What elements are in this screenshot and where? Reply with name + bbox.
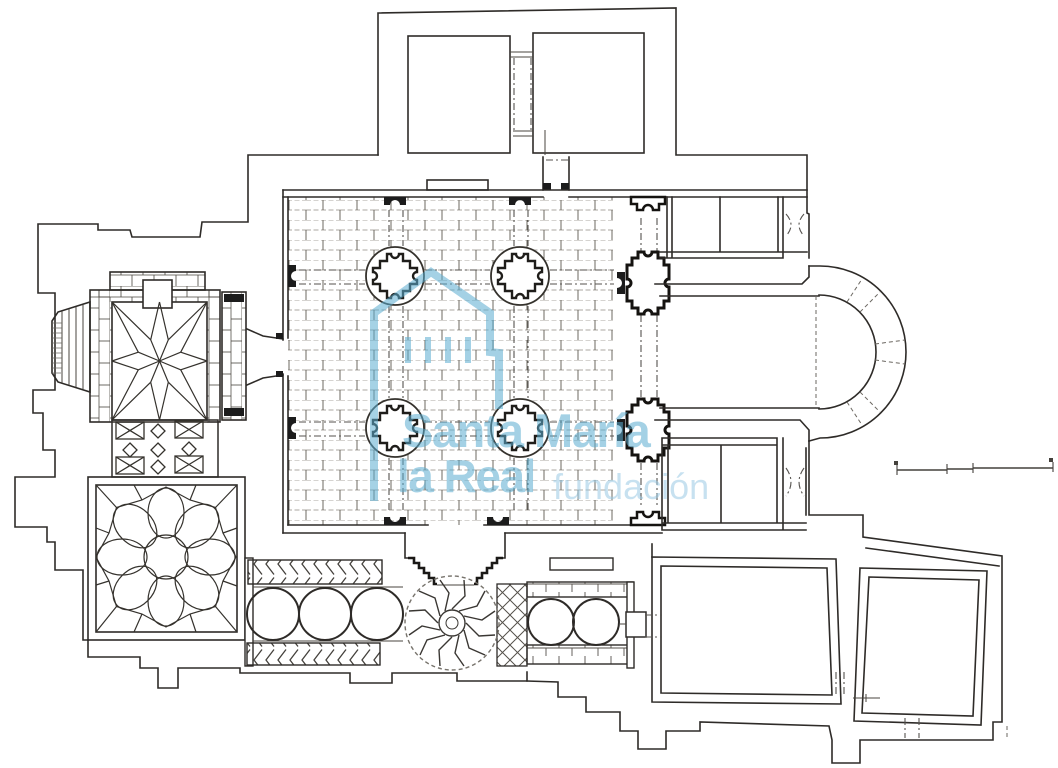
nave	[283, 180, 807, 533]
lattice-panel	[497, 584, 527, 666]
block-band	[527, 582, 633, 597]
chevron-band	[247, 643, 380, 665]
block-band	[527, 645, 633, 664]
respond	[617, 272, 625, 294]
star-vault	[112, 302, 207, 420]
watermark-subtitle: fundación	[553, 466, 709, 507]
engaged-pier	[631, 197, 665, 210]
north-annex-rooms	[408, 33, 644, 190]
cruciform-pier	[627, 252, 669, 314]
chancel-apse	[655, 266, 906, 441]
southeast-rooms	[645, 544, 987, 738]
north-chapel	[660, 197, 807, 258]
north-door	[427, 180, 488, 190]
stepped-portal	[405, 533, 505, 585]
checkerboard-vestibule	[112, 420, 218, 477]
wheel-vault	[405, 576, 499, 670]
scale-bar	[894, 458, 1053, 475]
flower-vault	[96, 485, 237, 632]
stair-turret	[52, 302, 90, 392]
rosette-chapel	[88, 477, 245, 640]
floor-plan-document: Santa María la Real fundación	[0, 0, 1058, 768]
floor-plan-drawing: Santa María la Real fundación	[0, 0, 1058, 768]
quatrefoil-column	[491, 247, 549, 305]
apse-outer-wall	[809, 266, 906, 441]
watermark-title-line2: la Real	[397, 450, 535, 502]
chevron-band	[248, 560, 382, 584]
engaged-pier	[631, 512, 665, 525]
bell-tower	[90, 272, 283, 422]
portico-gallery	[245, 558, 646, 668]
apse-inner-wall	[819, 295, 876, 409]
